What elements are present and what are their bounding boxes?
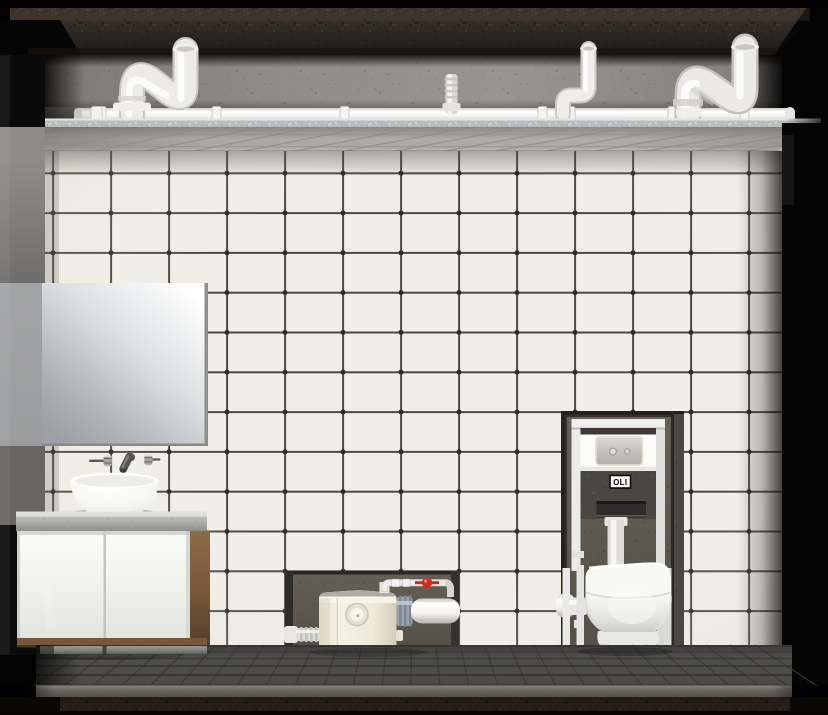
svg-text:OLI: OLI bbox=[613, 478, 627, 487]
